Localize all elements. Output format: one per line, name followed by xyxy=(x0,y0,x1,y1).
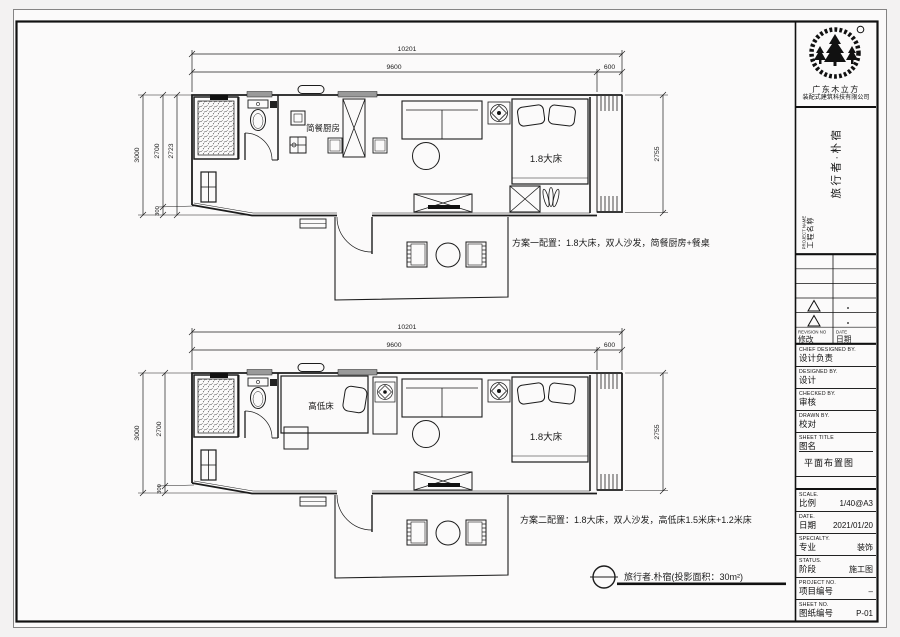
dim-left-small-bottom: 300 xyxy=(157,484,163,494)
project-name-label: PROJECT NAME 工程名称 xyxy=(802,213,815,253)
dim-left-small-top: 300 xyxy=(155,206,161,216)
field-scale: SCALE. 比例1/40@A3 xyxy=(796,490,876,512)
field-designed-by: DESIGNED BY. 设计 xyxy=(796,367,876,389)
project-name-zh: 工程名称 xyxy=(807,213,815,253)
field-status: STATUS. 阶段施工图 xyxy=(796,556,876,578)
registered-mark-icon xyxy=(857,26,864,33)
revision-triangle-2 xyxy=(808,316,820,327)
field-sheet-no: SHEET NO. 图纸编号P-01 xyxy=(796,600,876,622)
dim-left-mid-bottom: 2700 xyxy=(156,421,163,436)
dim-overall-top: 10201 xyxy=(398,46,417,53)
title-block: 广东木立方 装配式建筑科技有限公司 旅行者·朴宿 PROJECT NAME 工程… xyxy=(796,22,876,622)
caption-option-2: 方案二配置：1.8大床，双人沙发，高低床1.5米床+1.2米床 xyxy=(520,514,752,525)
field-label-zh: 校对 xyxy=(799,419,816,430)
caption-option-1: 方案一配置：1.8大床，双人沙发，简餐厨房+餐桌 xyxy=(512,237,710,248)
field-chief-designed-by: CHIEF DESIGNED BY. 设计负责 xyxy=(796,345,876,367)
field-label-zh: 审核 xyxy=(799,397,816,408)
project-no-value: – xyxy=(869,587,873,596)
dim-right-top: 2755 xyxy=(654,146,661,161)
scale-value: 1/40@A3 xyxy=(840,499,873,508)
revision-no-zh: 修改 xyxy=(798,334,814,344)
drawing-sheet: 简餐厨房 1.8大床 10201 9600 600 3000 270 xyxy=(0,0,900,637)
dim-overall-bottom: 10201 xyxy=(398,324,417,331)
room-label-bed-bottom: 1.8大床 xyxy=(530,431,563,443)
company-logo-section: 广东木立方 装配式建筑科技有限公司 xyxy=(796,22,876,108)
dim-main-bottom: 9600 xyxy=(386,342,401,349)
field-label-zh: 比例 xyxy=(799,498,816,509)
company-logo-icon xyxy=(807,24,865,80)
specialty-value: 装饰 xyxy=(857,542,873,553)
revision-triangle-1 xyxy=(808,301,820,312)
sheet-frame xyxy=(14,10,887,628)
sheet-no-value: P-01 xyxy=(856,609,873,618)
field-label-zh: 日期 xyxy=(799,520,816,531)
dim-left-outer-top: 3000 xyxy=(134,147,141,162)
field-label-zh: 项目编号 xyxy=(799,586,833,597)
field-date: DATE. 日期2021/01/20 xyxy=(796,512,876,534)
dim-left-mid-top: 2700 xyxy=(154,143,161,158)
room-label-bunk: 高低床 xyxy=(308,401,334,411)
field-label-zh: 阶段 xyxy=(799,564,816,575)
dim-ext-top: 600 xyxy=(604,64,616,71)
revision-date-zh: 日期 xyxy=(836,335,852,344)
room-label-bed-top: 1.8大床 xyxy=(530,153,563,165)
footer-underline xyxy=(617,583,786,586)
field-label-zh: 设计负责 xyxy=(799,353,833,364)
sheet-title-divider xyxy=(796,476,876,477)
revision-date-en: DATE xyxy=(836,330,847,335)
footer-label: 旅行者.朴宿(投影面积：30m²) xyxy=(624,571,743,582)
revision-table: REVISION NO 修改 DATE 日期 xyxy=(796,253,876,345)
field-specialty: SPECIALTY. 专业装饰 xyxy=(796,534,876,556)
dim-left-inner-top: 2723 xyxy=(168,143,175,158)
field-checked-by: CHECKED BY. 审核 xyxy=(796,389,876,411)
sheet-title-value: 平面布置图 xyxy=(799,456,873,469)
field-project-no: PROJECT NO. 项目编号– xyxy=(796,578,876,600)
dim-ext-bottom: 600 xyxy=(604,342,616,349)
floor-plan-canvas: 简餐厨房 1.8大床 10201 9600 600 3000 270 xyxy=(0,0,900,637)
field-label-zh: 专业 xyxy=(799,542,816,553)
dim-main-top: 9600 xyxy=(386,64,401,71)
field-label-zh: 设计 xyxy=(799,375,816,386)
project-name-label-section: PROJECT NAME 工程名称 xyxy=(796,215,876,253)
dim-left-outer-bottom: 3000 xyxy=(134,425,141,440)
sheet-title-zh: 图名 xyxy=(799,441,816,452)
project-title-vertical: 旅行者·朴宿 xyxy=(829,127,844,198)
status-value: 施工图 xyxy=(849,564,873,575)
date-value: 2021/01/20 xyxy=(833,521,873,530)
field-sheet-title: SHEET TITLE 图名 平面布置图 xyxy=(796,433,876,490)
revision-no-en: REVISION NO xyxy=(798,330,827,335)
company-name-line1: 广东木立方 xyxy=(796,85,876,94)
company-name-line2: 装配式建筑科技有限公司 xyxy=(796,94,876,101)
project-title-section: 旅行者·朴宿 xyxy=(796,110,876,215)
room-label-kitchen: 简餐厨房 xyxy=(306,123,340,133)
dim-right-bottom: 2755 xyxy=(654,424,661,439)
field-label-zh: 图纸编号 xyxy=(799,608,833,619)
field-drawn-by: DRAWN BY. 校对 xyxy=(796,411,876,433)
